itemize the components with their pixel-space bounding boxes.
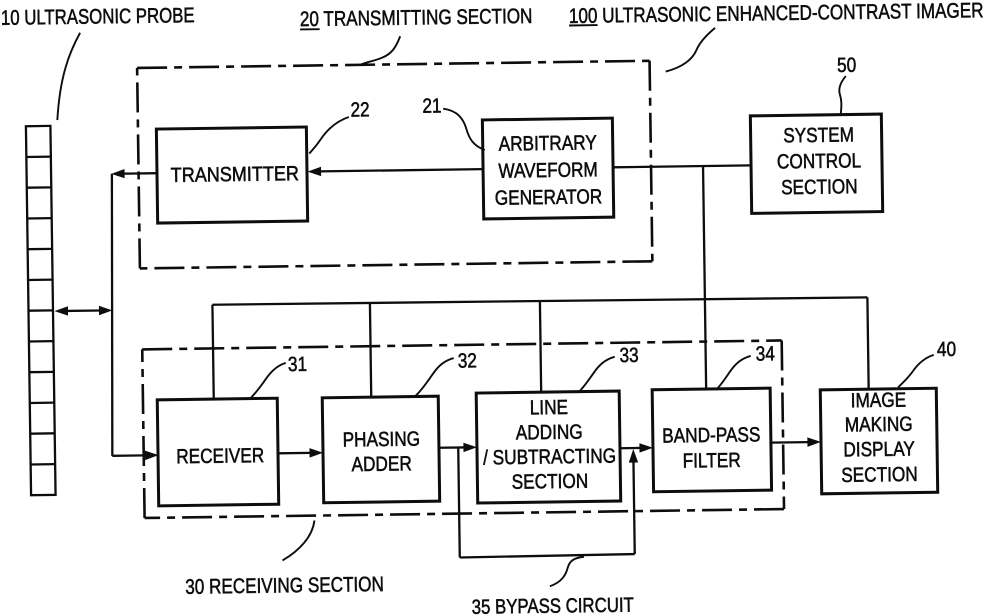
svg-text:32: 32 bbox=[458, 350, 477, 373]
svg-text:34: 34 bbox=[756, 343, 775, 366]
svg-text:SECTION: SECTION bbox=[512, 470, 589, 494]
svg-text:31: 31 bbox=[288, 354, 307, 377]
svg-text:30 RECEIVING SECTION: 30 RECEIVING SECTION bbox=[185, 574, 384, 600]
svg-text:FILTER: FILTER bbox=[682, 450, 740, 474]
svg-text:10 ULTRASONIC PROBE: 10 ULTRASONIC PROBE bbox=[1, 4, 195, 30]
svg-text:ARBITRARY: ARBITRARY bbox=[498, 132, 597, 156]
svg-text:PHASING: PHASING bbox=[342, 428, 420, 452]
svg-text:20 TRANSMITTING SECTION: 20 TRANSMITTING SECTION bbox=[300, 5, 533, 31]
svg-text:/ SUBTRACTING: / SUBTRACTING bbox=[483, 445, 616, 470]
svg-text:TRANSMITTER: TRANSMITTER bbox=[171, 163, 300, 187]
svg-text:33: 33 bbox=[619, 345, 638, 368]
svg-text:CONTROL: CONTROL bbox=[777, 150, 861, 174]
svg-text:RECEIVER: RECEIVER bbox=[176, 445, 264, 469]
svg-text:IMAGE: IMAGE bbox=[851, 389, 907, 413]
svg-text:GENERATOR: GENERATOR bbox=[495, 186, 603, 210]
svg-text:22: 22 bbox=[350, 99, 369, 122]
svg-text:DISPLAY: DISPLAY bbox=[843, 438, 915, 462]
svg-text:50: 50 bbox=[837, 54, 856, 77]
svg-text:SECTION: SECTION bbox=[841, 464, 918, 488]
svg-text:SYSTEM: SYSTEM bbox=[783, 124, 854, 148]
svg-text:BAND-PASS: BAND-PASS bbox=[662, 424, 761, 448]
svg-text:35 BYPASS CIRCUIT: 35 BYPASS CIRCUIT bbox=[472, 593, 635, 616]
svg-text:MAKING: MAKING bbox=[845, 413, 913, 437]
svg-text:LINE: LINE bbox=[530, 397, 569, 420]
svg-text:ADDER: ADDER bbox=[351, 453, 412, 477]
svg-text:SECTION: SECTION bbox=[781, 176, 858, 200]
svg-text:21: 21 bbox=[422, 95, 441, 118]
svg-text:ADDING: ADDING bbox=[516, 421, 583, 445]
svg-text:WAVEFORM: WAVEFORM bbox=[498, 159, 598, 183]
svg-text:40: 40 bbox=[937, 339, 956, 362]
